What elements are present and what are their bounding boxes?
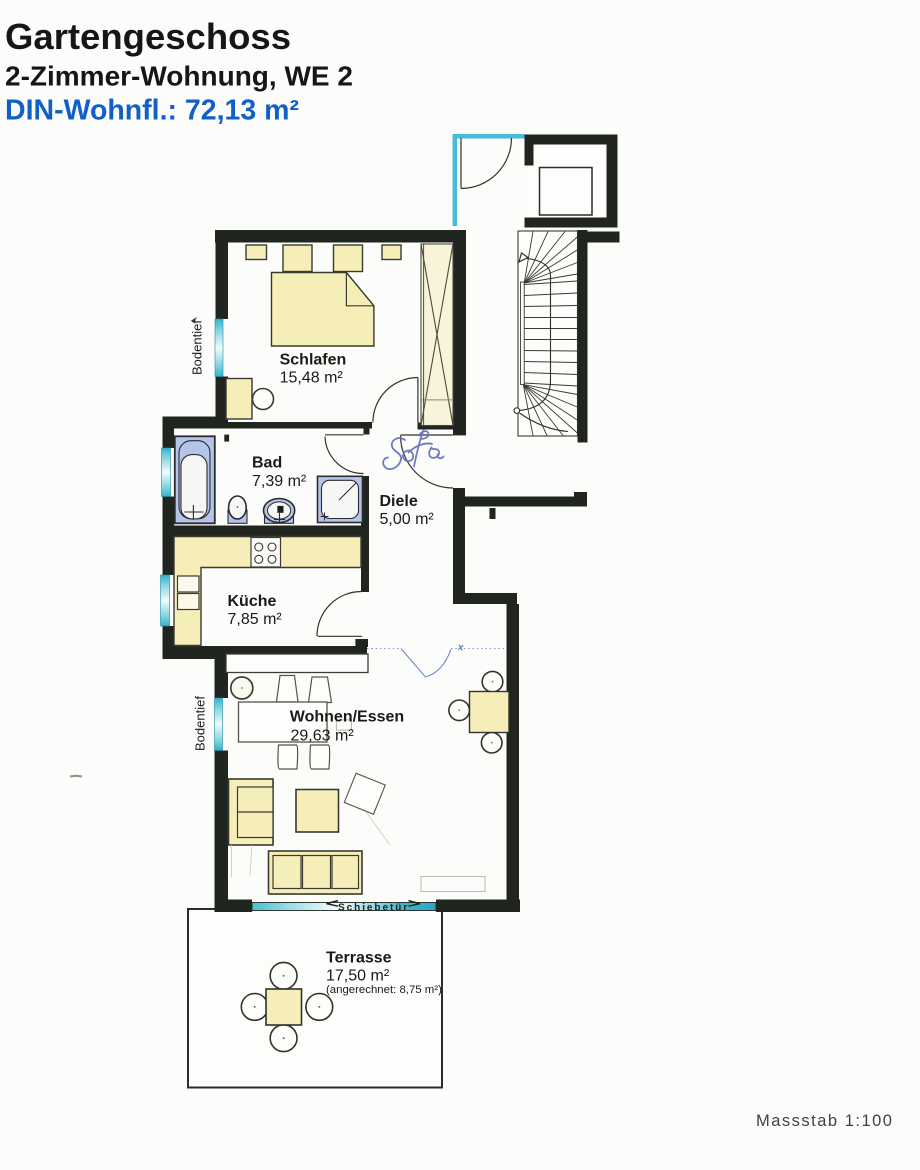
svg-text:Wohnen/Essen: Wohnen/Essen — [290, 708, 404, 725]
svg-text:Schlafen: Schlafen — [280, 352, 347, 369]
svg-text:(angerechnet: 8,75 m²): (angerechnet: 8,75 m²) — [326, 984, 442, 996]
svg-text:2-Zimmer-Wohnung, WE 2: 2-Zimmer-Wohnung, WE 2 — [5, 61, 353, 92]
svg-text:7,39 m²: 7,39 m² — [252, 473, 307, 490]
svg-text:Diele: Diele — [380, 493, 418, 510]
svg-text:5,00 m²: 5,00 m² — [380, 511, 435, 528]
svg-text:Bodentief: Bodentief — [190, 320, 205, 375]
svg-text:Küche: Küche — [228, 593, 277, 610]
svg-text:Bodentief: Bodentief — [193, 696, 208, 751]
svg-text:Massstab 1:100: Massstab 1:100 — [756, 1112, 893, 1130]
svg-text:DIN-Wohnfl.: 72,13 m²: DIN-Wohnfl.: 72,13 m² — [5, 95, 299, 127]
svg-text:Terrasse: Terrasse — [326, 950, 392, 967]
svg-text:29,63 m²: 29,63 m² — [291, 728, 355, 745]
svg-text:Gartengeschoss: Gartengeschoss — [5, 16, 291, 57]
svg-text:7,85 m²: 7,85 m² — [228, 611, 283, 628]
svg-text:Schiebetür: Schiebetür — [338, 902, 409, 913]
svg-text:17,50 m²: 17,50 m² — [326, 967, 390, 984]
svg-text:Bad: Bad — [252, 455, 282, 472]
svg-text:15,48 m²: 15,48 m² — [280, 369, 344, 386]
